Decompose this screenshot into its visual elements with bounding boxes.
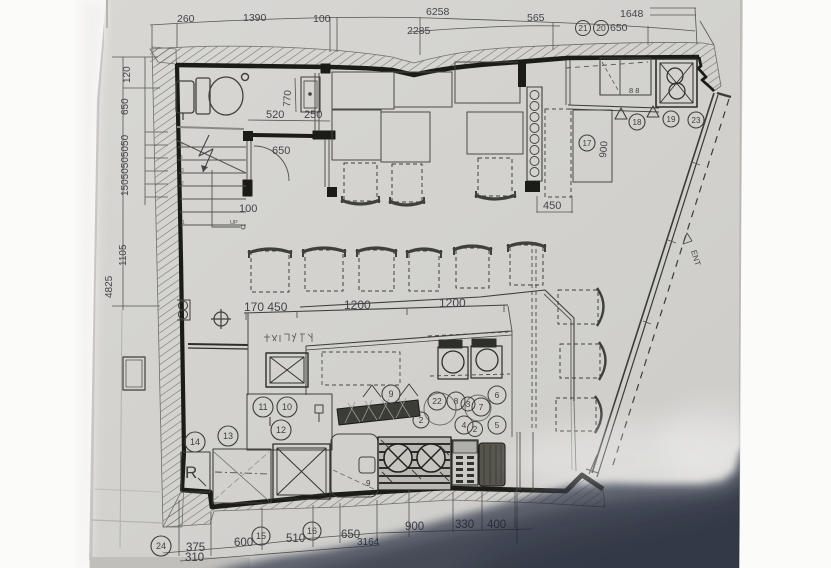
svg-text:9: 9 (388, 389, 393, 399)
svg-text:UP: UP (230, 220, 238, 226)
svg-text:2: 2 (419, 415, 424, 425)
svg-text:3: 3 (466, 399, 471, 409)
svg-text:13: 13 (223, 431, 233, 441)
svg-text:8: 8 (454, 396, 459, 406)
svg-text:510: 510 (286, 533, 305, 545)
svg-text:22: 22 (432, 396, 442, 406)
svg-text:20: 20 (596, 23, 606, 33)
svg-text:1648: 1648 (620, 8, 644, 20)
svg-text:4: 4 (180, 155, 183, 161)
svg-text:15050505050: 15050505050 (120, 134, 131, 196)
svg-text:650: 650 (120, 98, 131, 115)
svg-text:5: 5 (495, 420, 500, 430)
svg-text:6258: 6258 (426, 6, 450, 18)
svg-text:18: 18 (633, 118, 642, 127)
svg-text:4825: 4825 (104, 275, 115, 298)
svg-text:3: 3 (181, 168, 184, 174)
svg-text:2285: 2285 (407, 25, 431, 37)
svg-text:16: 16 (307, 526, 317, 536)
svg-text:6: 6 (495, 390, 500, 400)
svg-text:10: 10 (282, 402, 292, 412)
svg-text:120: 120 (122, 66, 133, 83)
svg-text:170 450: 170 450 (244, 300, 288, 314)
svg-text:9: 9 (366, 479, 371, 488)
svg-text:11: 11 (258, 402, 267, 412)
svg-text:1200: 1200 (344, 298, 371, 312)
svg-text:900: 900 (598, 140, 610, 158)
svg-text:770: 770 (282, 89, 294, 107)
svg-text:565: 565 (527, 12, 545, 24)
svg-text:19: 19 (667, 115, 676, 124)
svg-text:14: 14 (190, 437, 200, 447)
svg-text:1390: 1390 (243, 12, 267, 24)
svg-text:1: 1 (182, 220, 185, 226)
svg-text:650: 650 (610, 22, 628, 34)
svg-text:100: 100 (239, 203, 257, 215)
svg-text:2: 2 (181, 181, 184, 187)
svg-text:15: 15 (256, 531, 266, 541)
svg-text:520: 520 (266, 109, 284, 121)
svg-text:650: 650 (272, 145, 290, 157)
svg-text:260: 260 (177, 13, 195, 25)
svg-text:600: 600 (234, 537, 253, 549)
svg-text:12: 12 (276, 425, 286, 435)
svg-text:24: 24 (156, 541, 166, 551)
svg-text:310: 310 (185, 552, 204, 564)
svg-text:7: 7 (479, 402, 484, 412)
svg-text:4: 4 (462, 420, 467, 430)
svg-text:R: R (185, 463, 197, 482)
svg-text:1105: 1105 (118, 244, 129, 266)
svg-text:21: 21 (578, 23, 588, 33)
svg-text:23: 23 (692, 116, 701, 125)
svg-text:17: 17 (583, 139, 592, 148)
svg-text:8 8: 8 8 (629, 86, 639, 95)
svg-text:100: 100 (313, 13, 331, 25)
svg-text:250: 250 (304, 109, 322, 121)
svg-text:450: 450 (543, 200, 561, 212)
